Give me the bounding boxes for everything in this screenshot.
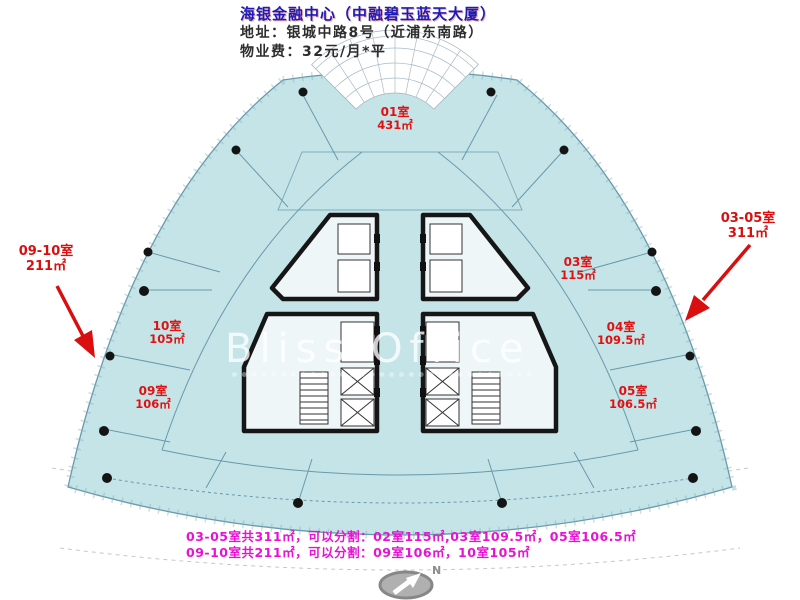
room-area: 106㎡ <box>135 398 171 411</box>
room-label-01: 01室 431㎡ <box>377 106 413 132</box>
room-label-09: 09室 106㎡ <box>135 385 171 411</box>
watermark-subline <box>232 372 532 377</box>
room-area: 431㎡ <box>377 119 413 132</box>
callout-rooms: 09-10室 <box>19 244 74 259</box>
building-title: 海银金融中心（中融碧玉蓝天大厦） <box>240 5 496 24</box>
room-label-03: 03室 115㎡ <box>560 256 596 282</box>
room-area: 109.5㎡ <box>597 334 645 347</box>
room-label-10: 10室 105㎡ <box>149 320 185 346</box>
split-summary: 03-05室共311㎡，可以分割：02室115㎡,03室109.5㎡，05室10… <box>186 529 636 561</box>
compass-icon <box>380 572 432 598</box>
callout-label-09-10: 09-10室 211㎡ <box>19 244 74 274</box>
split-summary-line2: 09-10室共211㎡，可以分割：09室106㎡，10室105㎡ <box>186 545 636 561</box>
floorplan-drawing <box>0 0 800 600</box>
building-outline <box>68 71 732 535</box>
arrow-03-05 <box>685 245 750 321</box>
callout-area: 211㎡ <box>19 259 74 274</box>
listing-header: 海银金融中心（中融碧玉蓝天大厦） 地址：银城中路8号（近浦东南路） 物业费：32… <box>240 5 496 62</box>
room-label-04: 04室 109.5㎡ <box>597 321 645 347</box>
room-area: 105㎡ <box>149 333 185 346</box>
building-address: 地址：银城中路8号（近浦东南路） <box>240 24 496 43</box>
room-area: 115㎡ <box>560 269 596 282</box>
room-area: 106.5㎡ <box>609 398 657 411</box>
room-label-05: 05室 106.5㎡ <box>609 385 657 411</box>
callout-area: 311㎡ <box>721 226 776 241</box>
callout-rooms: 03-05室 <box>721 211 776 226</box>
split-summary-line1: 03-05室共311㎡，可以分割：02室115㎡,03室109.5㎡，05室10… <box>186 529 636 545</box>
watermark-text: Bliss Office <box>225 326 530 372</box>
north-label: N <box>432 564 441 577</box>
arrow-09-10 <box>57 286 95 358</box>
property-fee: 物业费：32元/月*平 <box>240 43 496 62</box>
floorplan-page: Bliss Office 海银金融中心（中融碧玉蓝天大厦） 地址：银城中路8号（… <box>0 0 800 600</box>
callout-label-03-05: 03-05室 311㎡ <box>721 211 776 241</box>
